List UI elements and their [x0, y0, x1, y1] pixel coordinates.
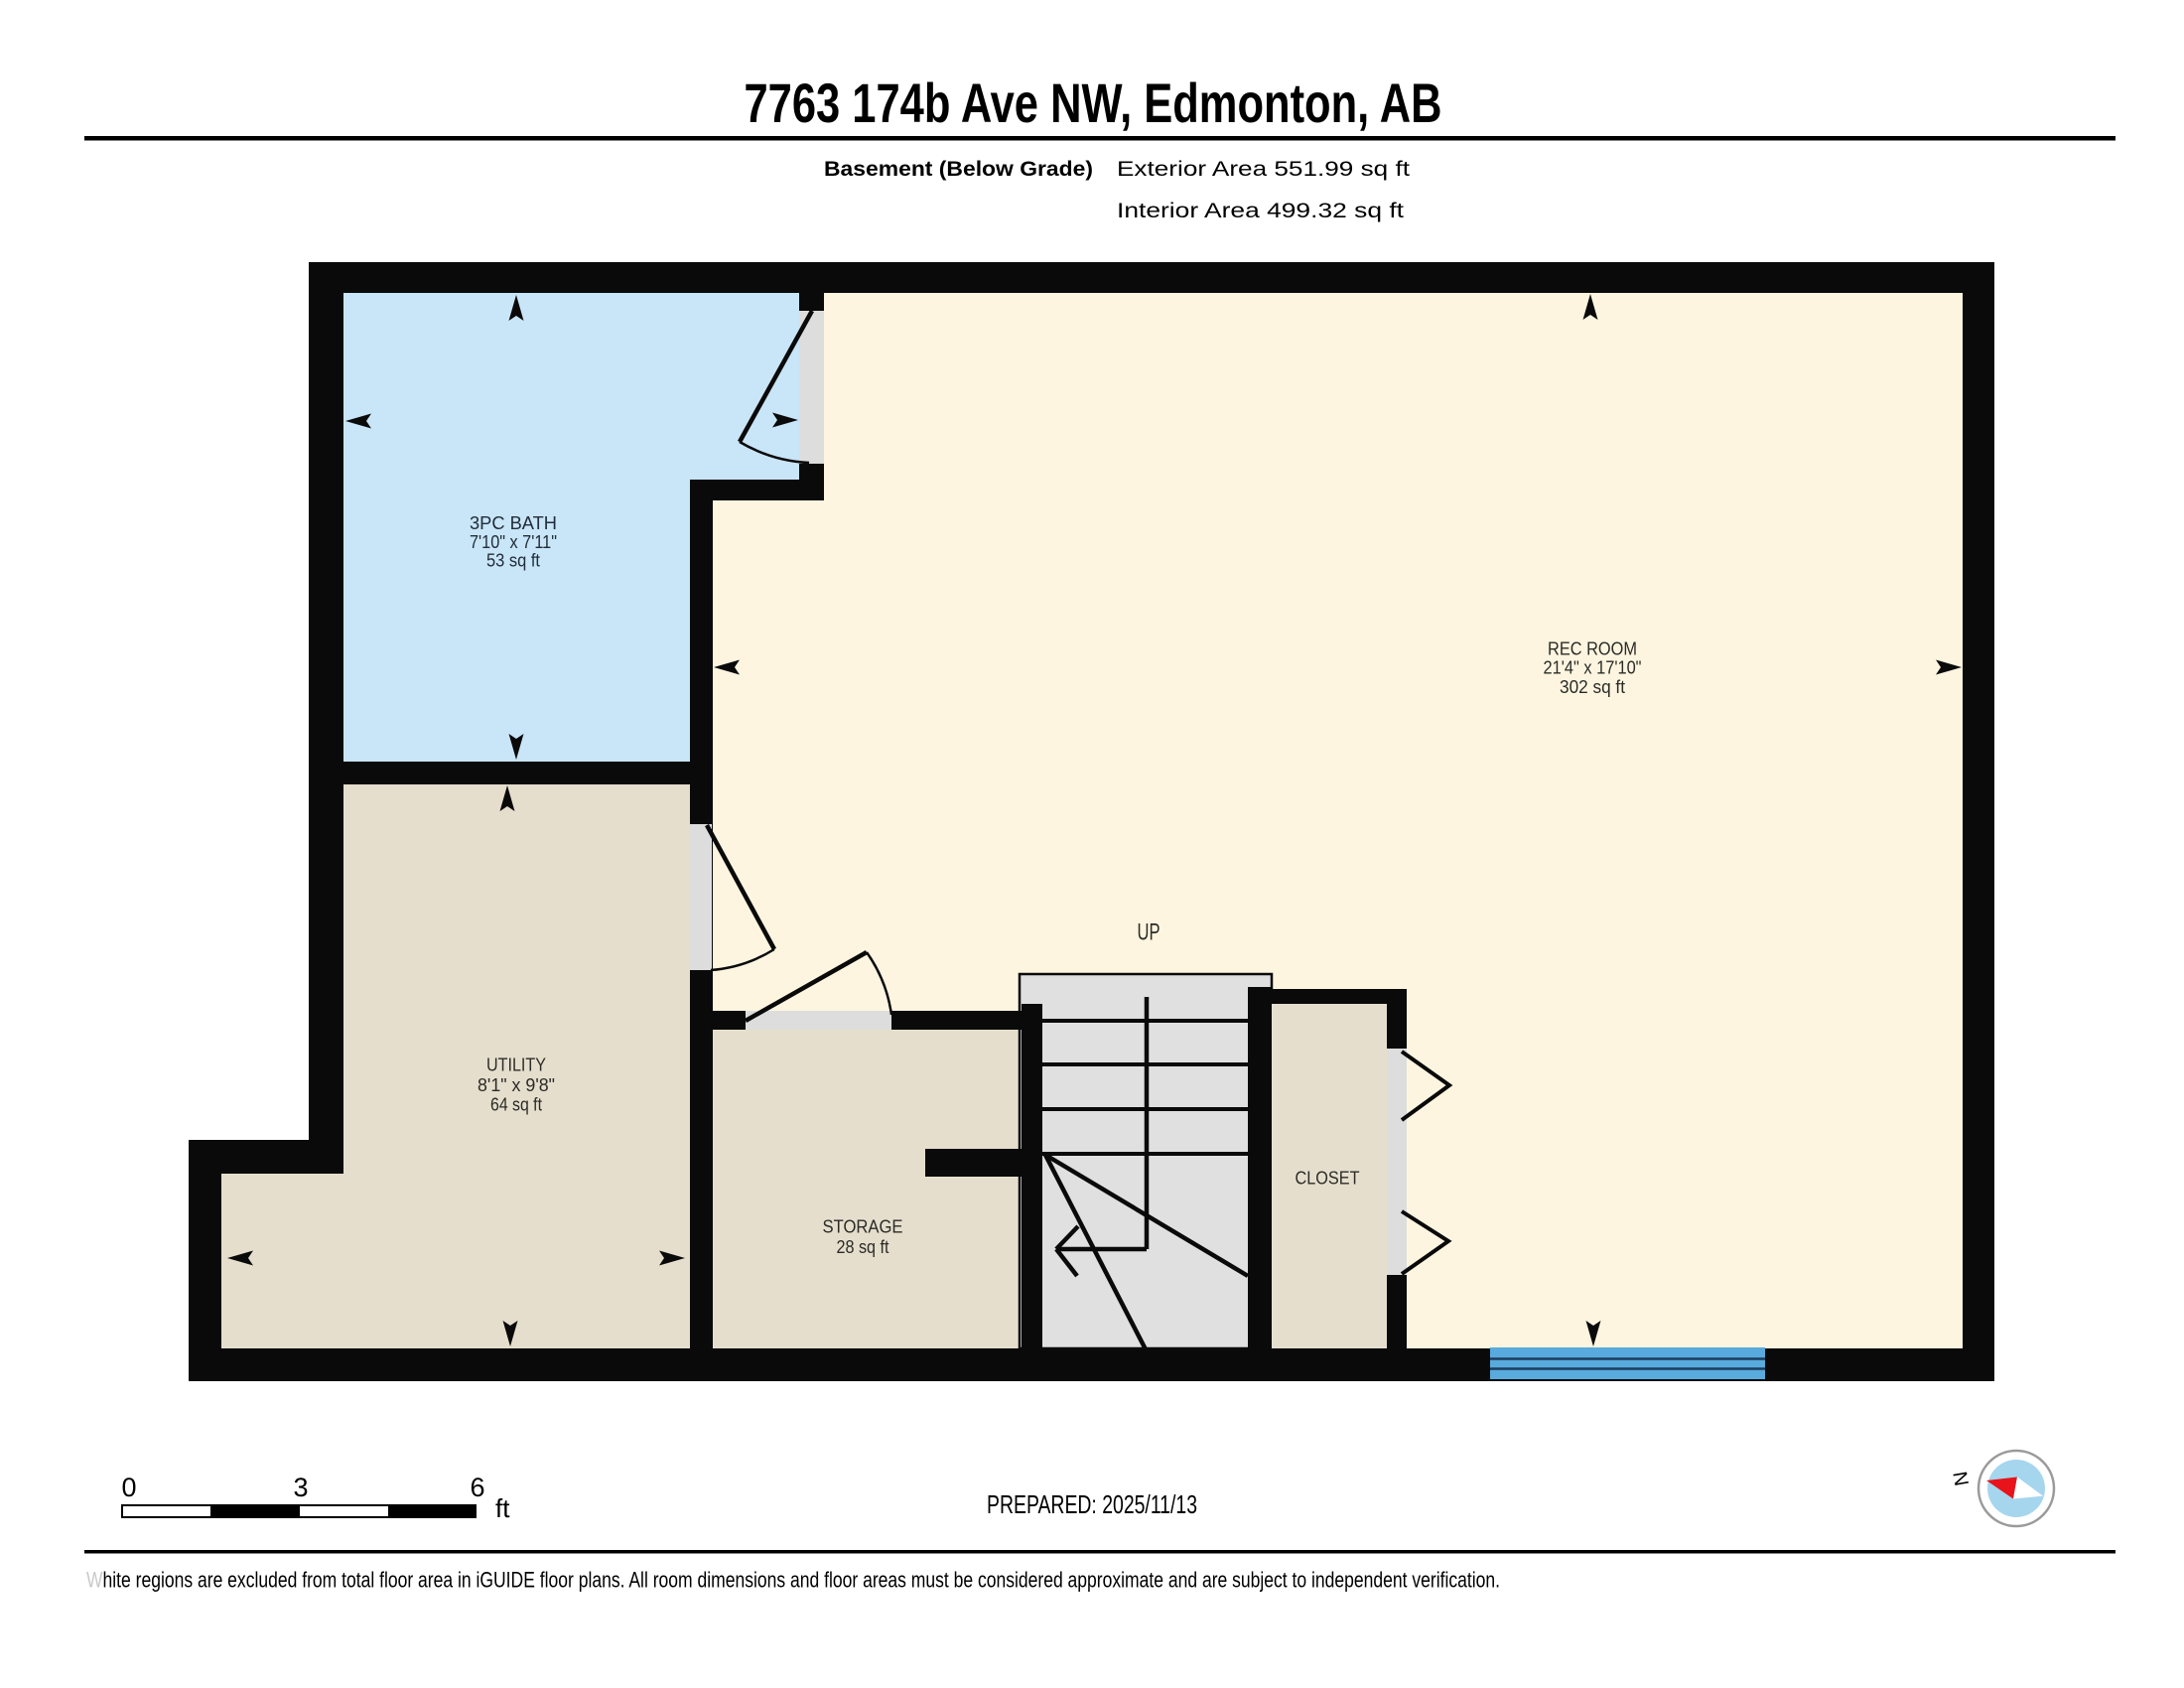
svg-text:CLOSET: CLOSET	[1296, 1168, 1360, 1189]
svg-text:Basement (Below Grade): Basement (Below Grade)	[824, 157, 1093, 181]
svg-text:21'4" x 17'10": 21'4" x 17'10"	[1544, 657, 1642, 678]
svg-text:64 sq ft: 64 sq ft	[490, 1094, 542, 1115]
svg-text:3: 3	[293, 1473, 308, 1502]
svg-text:UTILITY: UTILITY	[486, 1055, 546, 1075]
svg-text:Exterior Area 551.99 sq ft: Exterior Area 551.99 sq ft	[1117, 157, 1410, 181]
svg-text:REC ROOM: REC ROOM	[1548, 638, 1637, 659]
svg-text:28 sq ft: 28 sq ft	[837, 1236, 889, 1257]
svg-text:PREPARED: 2025/11/13: PREPARED: 2025/11/13	[987, 1489, 1197, 1519]
svg-text:ft: ft	[495, 1493, 510, 1523]
svg-text:White regions are excluded fro: White regions are excluded from total fl…	[86, 1568, 1500, 1593]
svg-text:UP: UP	[1138, 919, 1160, 946]
svg-text:0: 0	[121, 1473, 136, 1502]
svg-text:6: 6	[470, 1473, 484, 1502]
svg-text:8'1" x 9'8": 8'1" x 9'8"	[478, 1074, 555, 1095]
svg-text:3PC BATH: 3PC BATH	[470, 512, 557, 533]
svg-text:Interior Area 499.32 sq ft: Interior Area 499.32 sq ft	[1117, 199, 1404, 222]
svg-text:53 sq ft: 53 sq ft	[486, 550, 540, 571]
svg-text:7763 174b Ave NW, Edmonton, AB: 7763 174b Ave NW, Edmonton, AB	[745, 71, 1442, 134]
svg-text:STORAGE: STORAGE	[823, 1216, 903, 1237]
svg-text:302 sq ft: 302 sq ft	[1560, 676, 1625, 697]
